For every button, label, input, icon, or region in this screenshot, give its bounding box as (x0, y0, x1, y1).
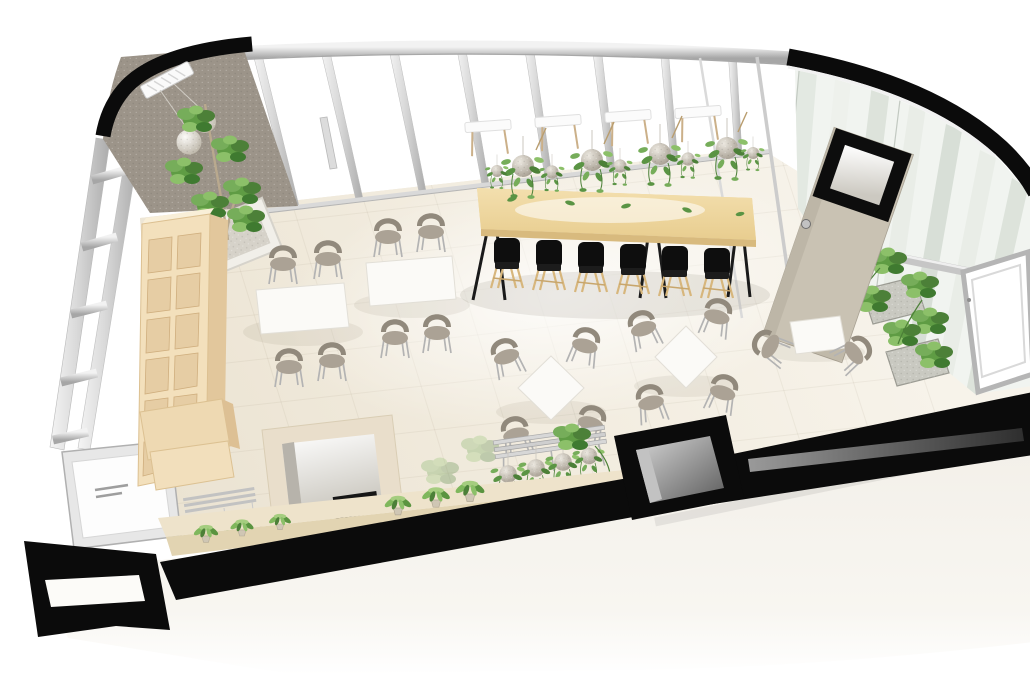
open-window[interactable] (963, 252, 1030, 392)
globe-lamp-1-texture (177, 130, 202, 155)
glass-vent-detail (320, 117, 337, 169)
wood-storage-boxes (140, 399, 240, 490)
left-outer-rail (50, 138, 110, 450)
render-canvas: Axonometric 3D rendering of a cafe floor… (0, 0, 1030, 675)
rect-table-1 (256, 283, 349, 334)
far-side-white-chairs (465, 105, 723, 156)
communal-table-zone (460, 105, 770, 319)
door-knob[interactable] (802, 220, 811, 229)
rect-table-2 (366, 256, 456, 306)
bottom-left-black-wall (24, 541, 170, 637)
window-hinge (967, 298, 971, 302)
table-specular (515, 197, 705, 223)
floorplan-3d-render: Axonometric 3D rendering of a cafe floor… (0, 0, 1030, 675)
